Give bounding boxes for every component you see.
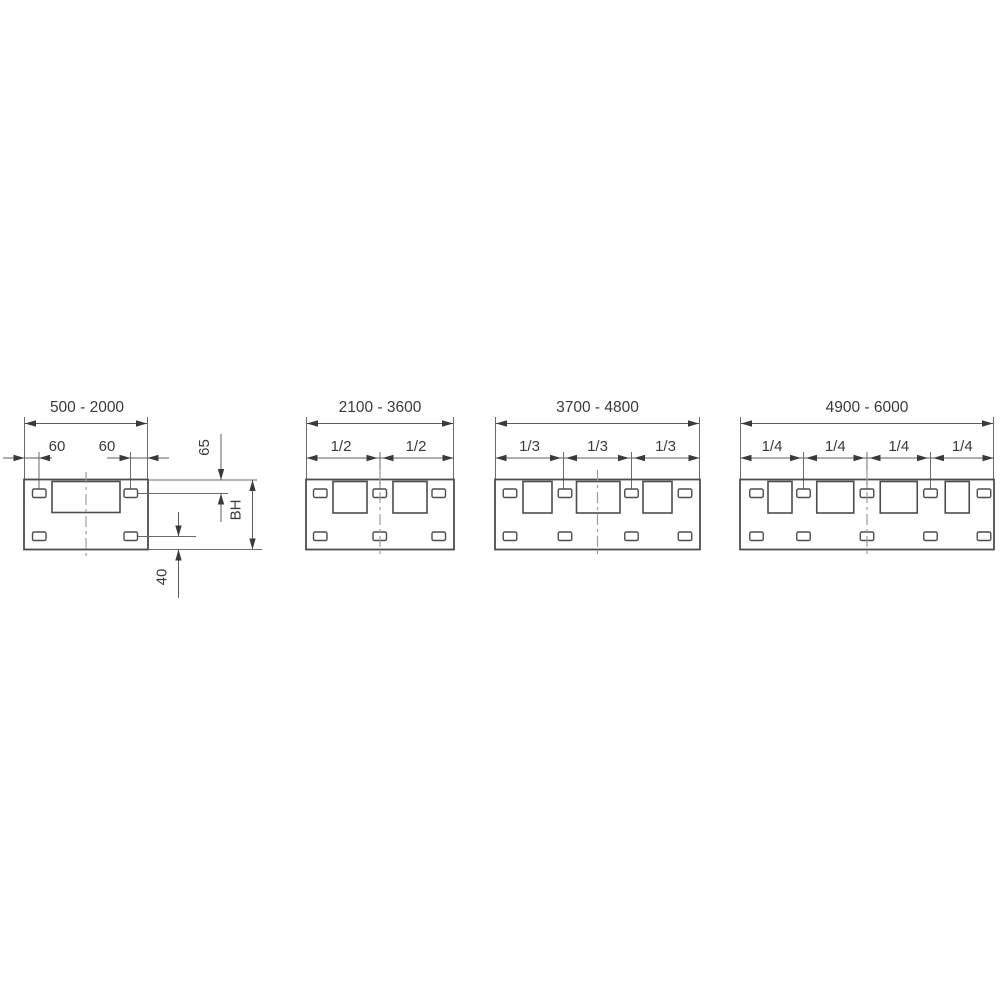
mounting-slot [124, 532, 138, 541]
mounting-slot [314, 532, 328, 541]
top-offset-label: 65 [196, 439, 213, 456]
fraction-label: 1/3 [655, 438, 676, 455]
mounting-slot [924, 489, 938, 498]
mounting-slot [558, 489, 572, 498]
arrow-right-icon [688, 420, 699, 426]
mounting-slot [678, 532, 692, 541]
cutout-square [523, 482, 552, 514]
cutout-square [577, 482, 621, 514]
arrow-right-icon [790, 455, 801, 461]
arrow-left-icon [566, 455, 577, 461]
arrow-right-icon [550, 455, 561, 461]
bottom-offset-label: 40 [154, 569, 171, 586]
cutout-square [768, 482, 792, 514]
cutout-square [393, 482, 427, 514]
arrow-down-icon [218, 469, 224, 480]
range-label: 500 - 2000 [50, 399, 124, 416]
offset-label: 60 [49, 438, 66, 455]
mounting-slot [750, 532, 764, 541]
arrow-left-icon [25, 420, 36, 426]
offset-label: 60 [99, 438, 116, 455]
mounting-slot [678, 489, 692, 498]
arrow-right-icon [983, 455, 994, 461]
technical-drawing: 500 - 2000 60 60 65 [0, 0, 1000, 1000]
mounting-slot [625, 532, 639, 541]
fraction-label: 1/4 [952, 438, 973, 455]
fraction-label: 1/2 [331, 438, 352, 455]
arrow-right-icon [120, 455, 131, 461]
panel-2100-3600: 2100 - 3600 1/2 1/2 [306, 399, 454, 557]
cutout-square [880, 482, 917, 514]
arrow-left-icon [634, 455, 645, 461]
arrow-up-icon [218, 494, 224, 505]
mounting-slot [432, 489, 446, 498]
arrow-left-icon [148, 455, 159, 461]
mounting-slot [33, 489, 47, 498]
arrow-left-icon [741, 420, 752, 426]
mounting-slot [924, 532, 938, 541]
mounting-slot [124, 489, 138, 498]
cutout-square [643, 482, 672, 514]
mounting-slot [797, 532, 811, 541]
arrow-right-icon [854, 455, 865, 461]
mounting-slot [625, 489, 639, 498]
fraction-label: 1/4 [888, 438, 909, 455]
mounting-slot [503, 532, 517, 541]
arrow-right-icon [982, 420, 993, 426]
arrow-down-icon [249, 539, 255, 550]
arrow-left-icon [307, 420, 318, 426]
fraction-label: 1/4 [825, 438, 846, 455]
fraction-label: 1/4 [762, 438, 783, 455]
panel-500-2000: 500 - 2000 60 60 65 [3, 399, 262, 598]
arrow-right-icon [136, 420, 147, 426]
mounting-slot [977, 489, 991, 498]
cutout-square [945, 482, 969, 514]
arrow-left-icon [806, 455, 817, 461]
panel-3700-4800: 3700 - 4800 1/3 1/3 1/3 [495, 399, 700, 557]
arrow-right-icon [442, 420, 453, 426]
height-label: BH [228, 500, 245, 521]
mounting-slot [33, 532, 47, 541]
arrow-down-icon [175, 526, 181, 537]
mounting-slot [797, 489, 811, 498]
drawing-canvas: 500 - 2000 60 60 65 [0, 0, 1000, 1000]
arrow-left-icon [496, 420, 507, 426]
arrow-left-icon [307, 455, 318, 461]
arrow-left-icon [870, 455, 881, 461]
arrow-left-icon [933, 455, 944, 461]
mounting-slot [750, 489, 764, 498]
range-label: 4900 - 6000 [826, 399, 909, 416]
arrow-up-icon [249, 480, 255, 491]
cutout-square [817, 482, 854, 514]
arrow-right-icon [618, 455, 629, 461]
mounting-slot [314, 489, 328, 498]
range-label: 2100 - 3600 [339, 399, 422, 416]
arrow-right-icon [14, 455, 25, 461]
mounting-slot [977, 532, 991, 541]
arrow-right-icon [917, 455, 928, 461]
mounting-slot [558, 532, 572, 541]
mounting-slot [432, 532, 446, 541]
range-label: 3700 - 4800 [556, 399, 639, 416]
panel-4900-6000: 4900 - 6000 1/4 1/4 1/4 1/4 [740, 399, 994, 557]
arrow-up-icon [175, 550, 181, 561]
fraction-label: 1/3 [587, 438, 608, 455]
arrow-right-icon [367, 455, 378, 461]
cutout-square [333, 482, 367, 514]
mounting-slot [503, 489, 517, 498]
arrow-left-icon [496, 455, 507, 461]
fraction-label: 1/3 [519, 438, 540, 455]
arrow-left-icon [383, 455, 394, 461]
arrow-left-icon [39, 455, 50, 461]
fraction-label: 1/2 [406, 438, 427, 455]
arrow-right-icon [443, 455, 454, 461]
arrow-right-icon [689, 455, 700, 461]
arrow-left-icon [741, 455, 752, 461]
